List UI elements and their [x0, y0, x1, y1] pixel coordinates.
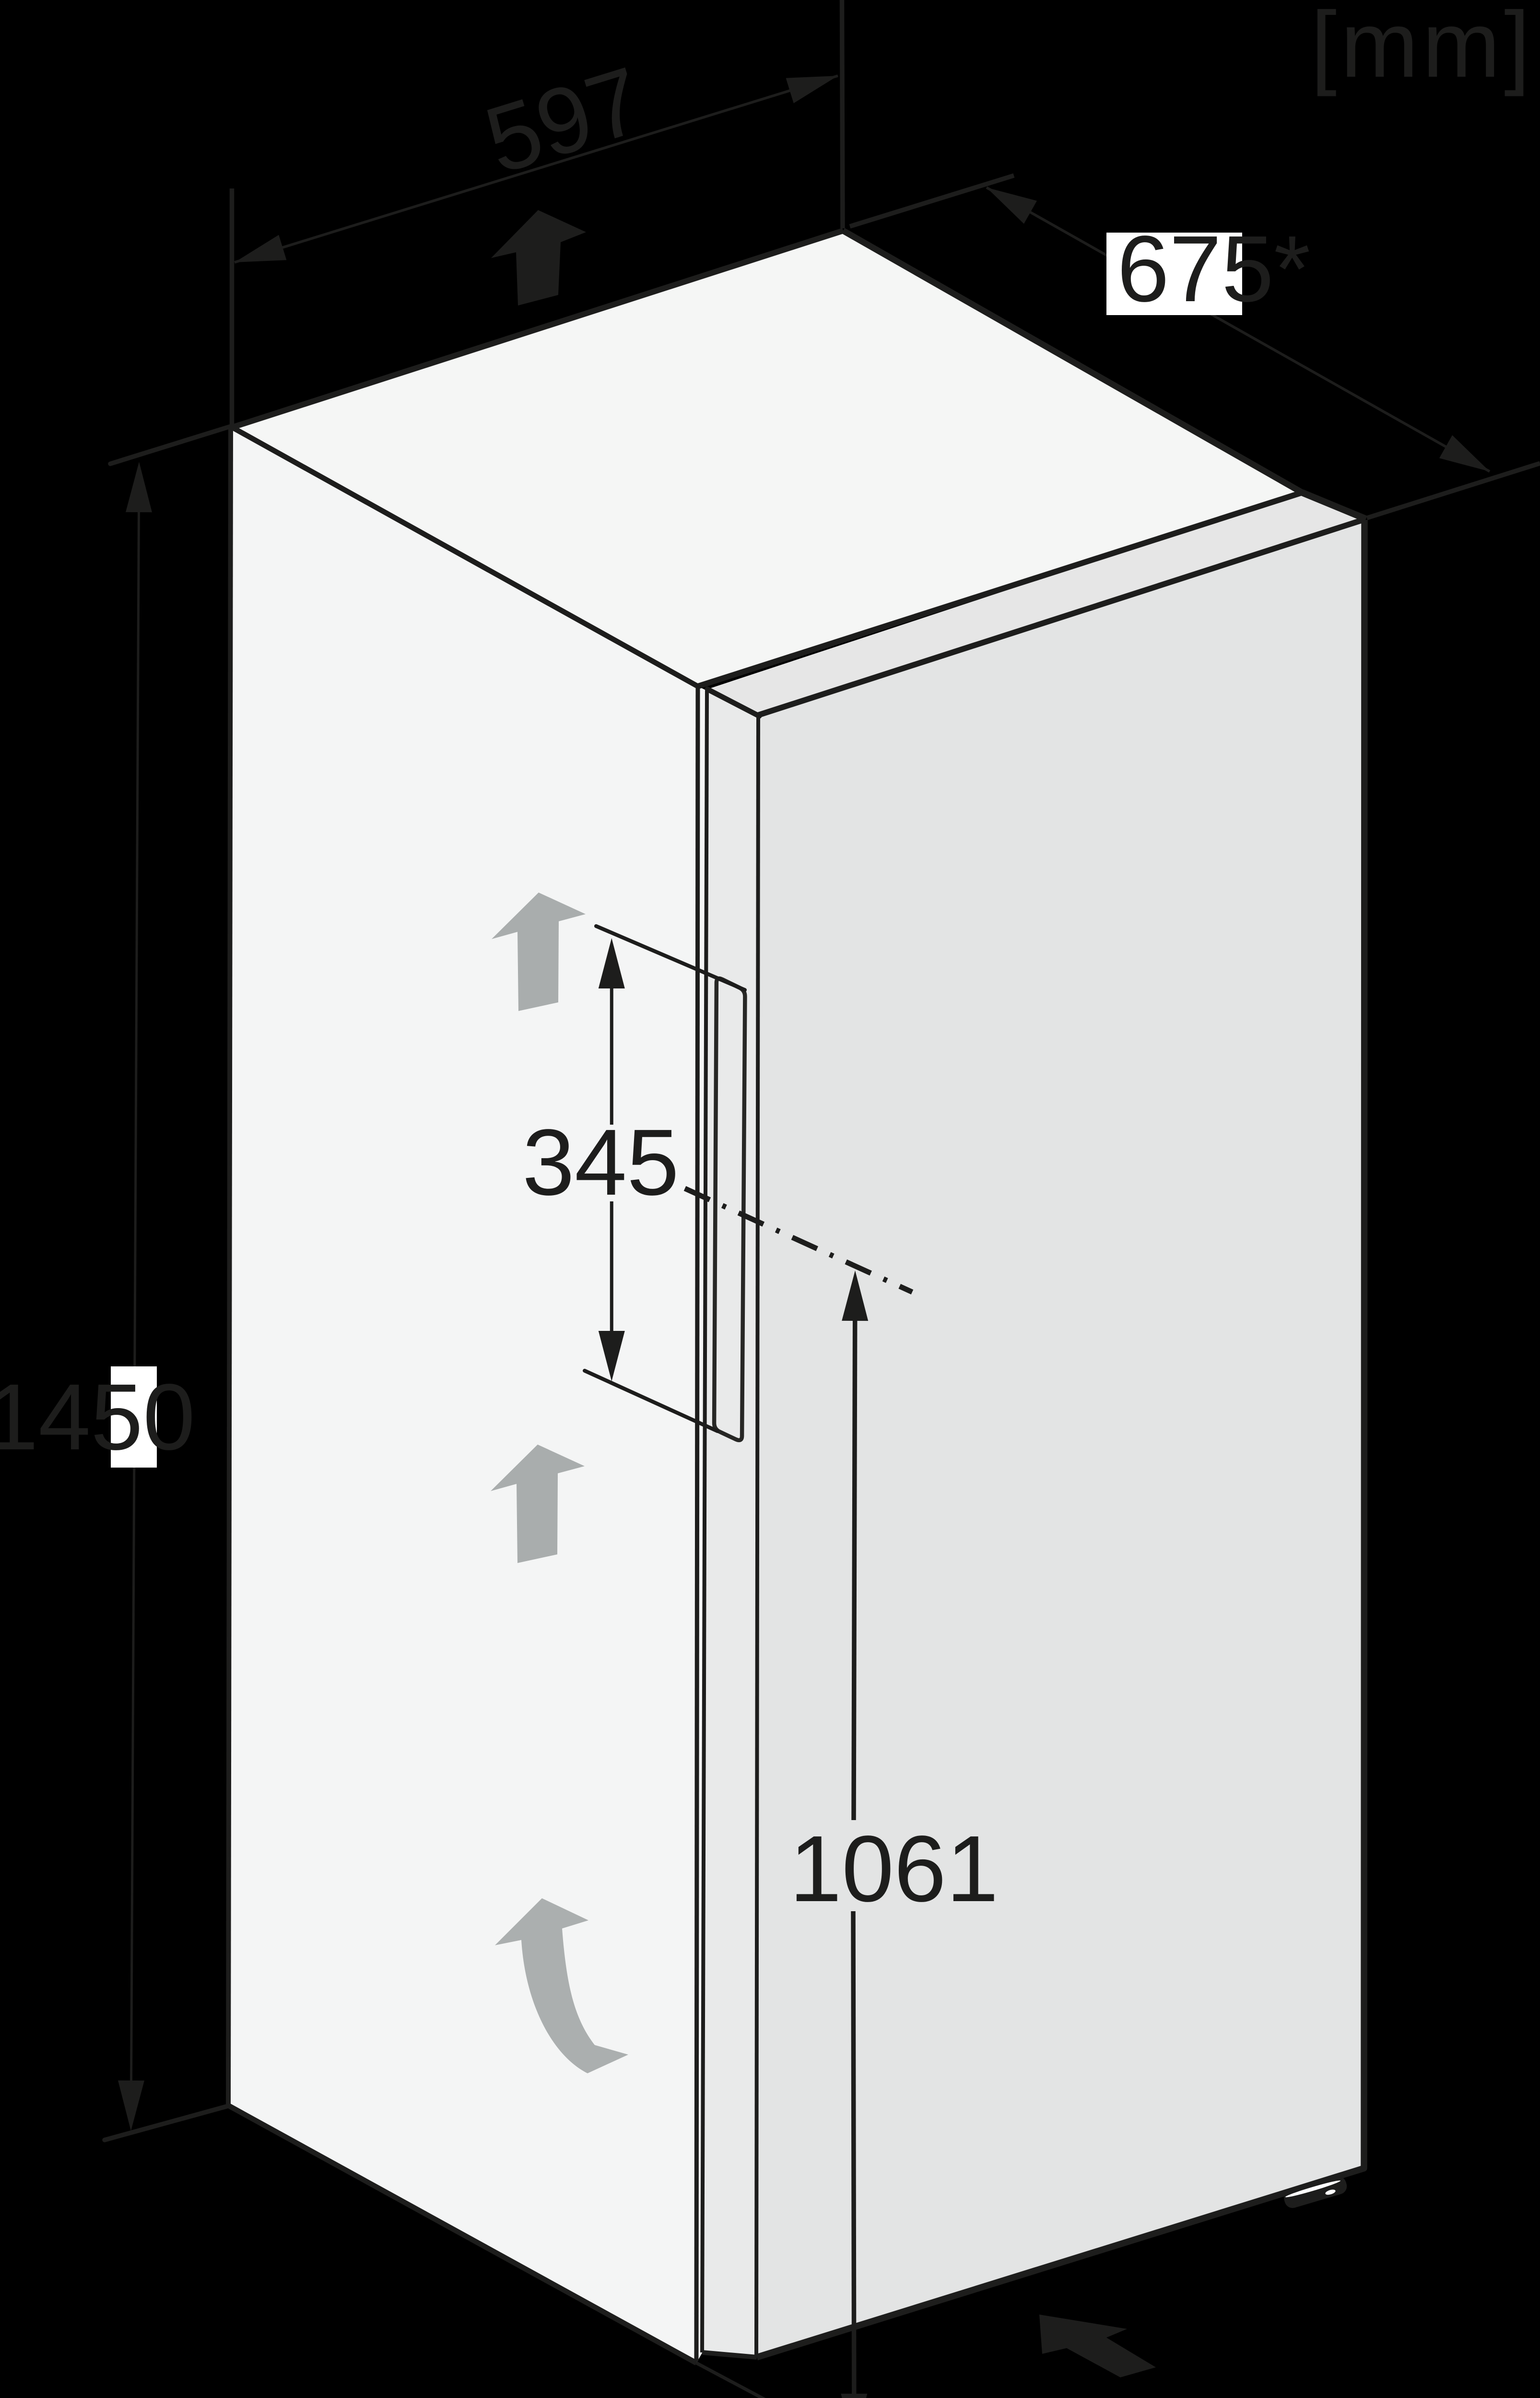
svg-text:1450: 1450 [0, 1364, 195, 1469]
svg-text:[mm]: [mm] [1311, 0, 1534, 97]
svg-text:675*: 675* [1117, 216, 1310, 321]
svg-text:345: 345 [522, 1110, 679, 1215]
svg-text:1061: 1061 [789, 1816, 999, 1921]
